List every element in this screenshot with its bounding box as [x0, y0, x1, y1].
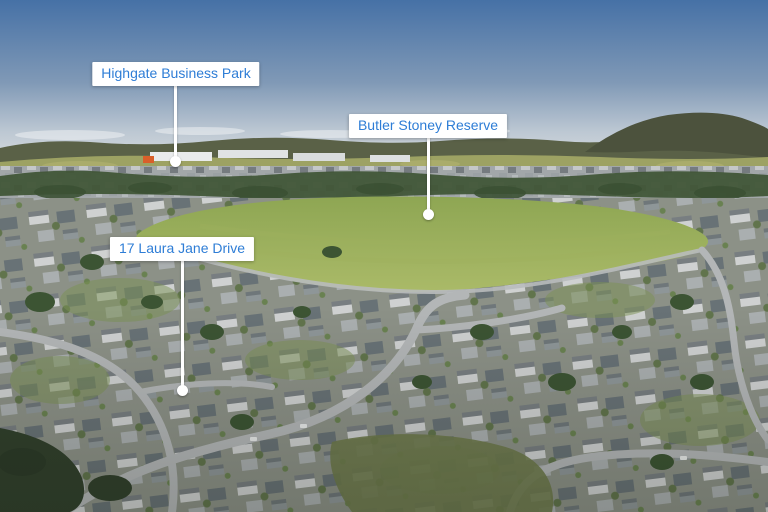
- callout-marker-dot: [177, 385, 188, 396]
- callout-line: [174, 85, 177, 158]
- callout-marker-dot: [423, 209, 434, 220]
- callout-label: Butler Stoney Reserve: [349, 114, 507, 138]
- callout-label: Highgate Business Park: [92, 62, 259, 86]
- callout-label: 17 Laura Jane Drive: [110, 237, 254, 261]
- callout-line: [181, 261, 184, 387]
- aerial-photo: Highgate Business Park Butler Stoney Res…: [0, 0, 768, 512]
- callout-marker-dot: [170, 156, 181, 167]
- callout-line: [427, 137, 430, 211]
